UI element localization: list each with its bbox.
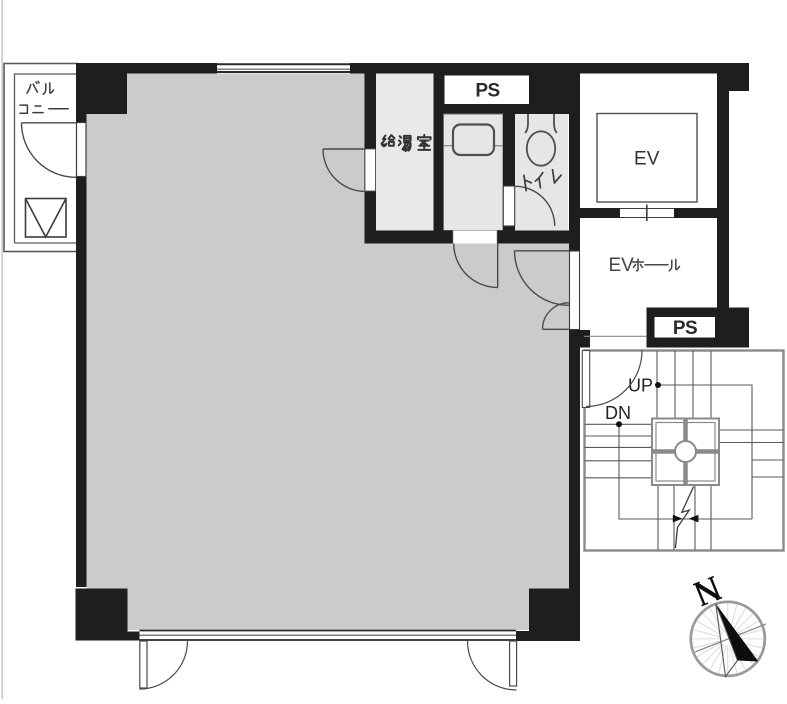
svg-text:EV: EV (609, 255, 635, 276)
svg-text:UP: UP (628, 376, 653, 396)
svg-text:DN: DN (605, 403, 631, 423)
svg-text:PS: PS (475, 81, 499, 102)
svg-text:EV: EV (634, 148, 660, 169)
svg-text:PS: PS (673, 318, 697, 339)
